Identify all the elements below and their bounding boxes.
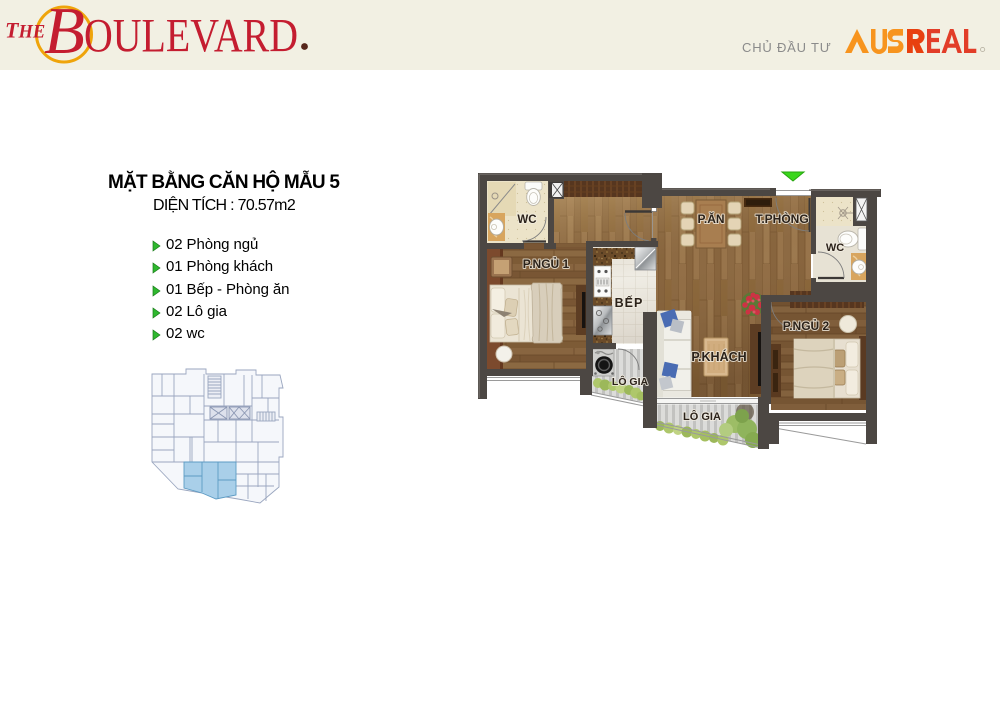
svg-text:LÔ GIA: LÔ GIA bbox=[612, 375, 649, 388]
svg-text:P.KHÁCH: P.KHÁCH bbox=[691, 349, 746, 364]
svg-text:OULEVARD: OULEVARD bbox=[84, 10, 298, 63]
svg-text:T.PHÒNG: T.PHÒNG bbox=[755, 211, 808, 226]
svg-text:WC: WC bbox=[517, 214, 536, 226]
svg-text:LÔ GIA: LÔ GIA bbox=[683, 410, 721, 423]
svg-text:P.NGỦ 2: P.NGỦ 2 bbox=[783, 318, 830, 333]
svg-text:P.ĂN: P.ĂN bbox=[697, 211, 724, 226]
svg-text:B: B bbox=[44, 0, 85, 68]
svg-text:BẾP: BẾP bbox=[615, 295, 644, 310]
svg-text:WC: WC bbox=[826, 242, 844, 254]
svg-text:P.NGỦ 1: P.NGỦ 1 bbox=[523, 256, 570, 271]
